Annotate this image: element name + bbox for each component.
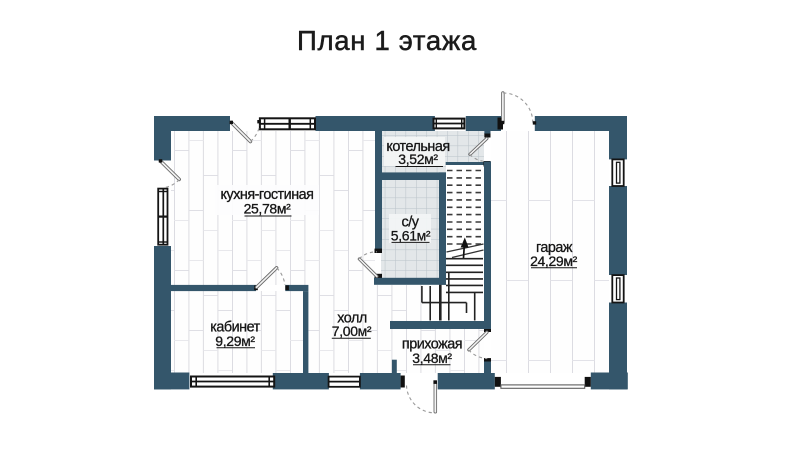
svg-text:7,00м²: 7,00м² <box>332 323 372 339</box>
svg-text:3,52м²: 3,52м² <box>398 151 438 167</box>
svg-text:25,78м²: 25,78м² <box>244 201 292 217</box>
svg-text:3,48м²: 3,48м² <box>412 350 452 366</box>
svg-text:9,29м²: 9,29м² <box>215 333 255 349</box>
svg-text:5,61м²: 5,61м² <box>391 228 431 244</box>
svg-text:24,29м²: 24,29м² <box>530 253 578 269</box>
svg-text:План 1 этажа: План 1 этажа <box>297 25 477 56</box>
